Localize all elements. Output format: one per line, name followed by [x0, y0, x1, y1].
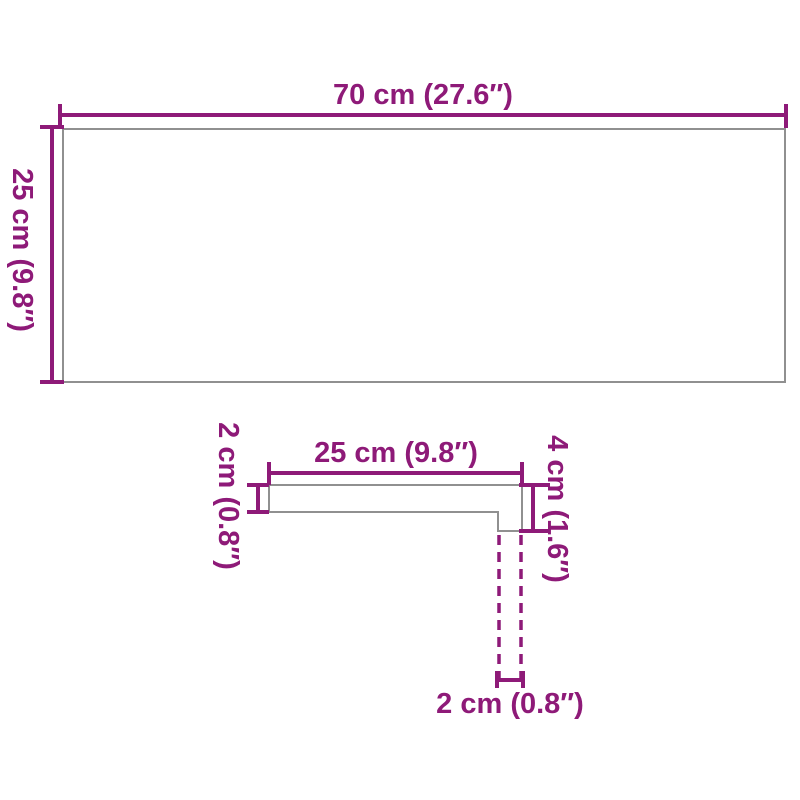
profile-view: 25 cm (9.8″) 2 cm (0.8″) 4 cm (1.6″)	[212, 422, 584, 720]
front-height-dimension-line	[40, 127, 64, 382]
dimension-diagram-svg: 70 cm (27.6″) 25 cm (9.8″) 25 cm (9.8″)	[0, 0, 800, 800]
profile-thickness-label: 2 cm (0.8″)	[212, 422, 244, 570]
front-height-label: 25 cm (9.8″)	[6, 168, 38, 332]
profile-nose-height-label: 4 cm (1.6″)	[541, 435, 573, 583]
front-width-label: 70 cm (27.6″)	[333, 79, 513, 111]
nose-projection-lines	[499, 535, 521, 686]
panel-front-outline	[63, 129, 785, 382]
panel-profile-outline	[269, 485, 522, 531]
front-view: 70 cm (27.6″) 25 cm (9.8″)	[6, 79, 786, 382]
profile-thickness-dimension-line	[247, 485, 269, 512]
profile-nose-depth-label: 2 cm (0.8″)	[436, 688, 584, 720]
dimension-diagram: 70 cm (27.6″) 25 cm (9.8″) 25 cm (9.8″)	[0, 0, 800, 800]
profile-depth-label: 25 cm (9.8″)	[314, 437, 478, 469]
profile-nose-depth-dimension-line	[497, 671, 523, 688]
